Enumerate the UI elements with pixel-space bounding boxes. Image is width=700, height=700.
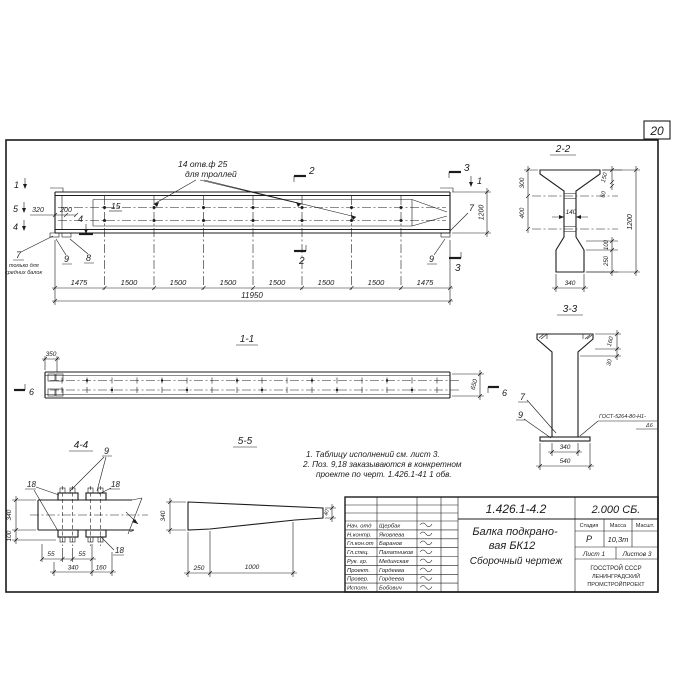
- section-mark-5: 5: [13, 202, 26, 214]
- svg-text:350: 350: [46, 351, 57, 358]
- row-name: Баранов: [379, 541, 402, 547]
- pos-label-9-left: 9: [56, 239, 72, 264]
- svg-text:1500: 1500: [318, 278, 336, 287]
- dim-160-30: 160 30: [580, 330, 621, 367]
- bolt-assemblies: [58, 486, 106, 546]
- view-1-1-title: 1-1: [240, 334, 254, 345]
- svg-text:7: 7: [520, 392, 526, 402]
- dim-bottom-v44: 55 55 340 160: [40, 544, 116, 576]
- svg-text:55: 55: [78, 551, 86, 558]
- svg-text:1475: 1475: [417, 278, 435, 287]
- org-line-3: ПРОМСТРОЙПРОЕКТ: [587, 580, 645, 588]
- section-mark-2-bottom: 2: [294, 245, 306, 267]
- pos-label-8: 8: [70, 239, 94, 263]
- dim-340-v55: 340: [160, 498, 186, 534]
- svg-text:100: 100: [6, 530, 13, 541]
- pos-label-7-right: 7: [450, 203, 475, 231]
- doc-type: Сборочный чертеж: [470, 555, 564, 567]
- pos-label-15: 15: [109, 201, 122, 211]
- section-mark-3-top: 3: [449, 163, 470, 178]
- view-4-4: 4-4 9 18 18: [6, 440, 148, 576]
- val-stage: Р: [586, 534, 592, 544]
- svg-text:только для: только для: [9, 263, 39, 269]
- row-role: Рук. гр.: [347, 559, 367, 565]
- svg-text:250: 250: [604, 255, 610, 267]
- holes-callout: 14 отв.ф 25 для троллей: [154, 159, 356, 220]
- main-elevation-view: 1 5 4 4 2 2 3 3: [5, 159, 491, 305]
- hole-marks-plan: [62, 378, 437, 394]
- org-line-2: ЛЕНИНГРАДСКИЙ: [592, 572, 640, 580]
- row-name: Щербак: [379, 524, 400, 530]
- note-line-3: проекте по черт. 1.426.1-41 1 обв.: [316, 470, 452, 479]
- section-mark-6-right: 6: [488, 387, 507, 398]
- svg-text:1000: 1000: [245, 564, 260, 571]
- doc-number: 1.426.1-4.2: [486, 502, 547, 516]
- svg-text:1500: 1500: [170, 278, 188, 287]
- dim-250-1000: 250 1000: [184, 522, 297, 577]
- section-3-3: 3-3 160 30 7 9 ГОСТ-5264-80-Н1- Δ6 340: [516, 304, 657, 470]
- svg-text:15: 15: [111, 201, 121, 211]
- svg-text:8: 8: [86, 253, 91, 263]
- row-role: Нач. отд: [347, 524, 372, 530]
- pos-label-9-right: 9: [427, 239, 445, 264]
- section-mark-1-right: 1: [469, 176, 482, 187]
- svg-text:320: 320: [32, 207, 44, 214]
- row-role: Исполн.: [347, 586, 368, 592]
- svg-text:2: 2: [308, 166, 315, 177]
- col-scale: Масшт.: [636, 523, 655, 529]
- svg-text:3: 3: [464, 163, 470, 174]
- pos-label-7-left: 7 только для средних балок: [5, 236, 53, 276]
- svg-text:7: 7: [16, 250, 22, 260]
- svg-text:4: 4: [78, 214, 83, 224]
- svg-text:1200: 1200: [627, 214, 634, 230]
- val-mass: 10,3т: [608, 535, 629, 544]
- dim-350: 350: [42, 351, 60, 372]
- dim-650: 650: [452, 370, 484, 400]
- page-number: 20: [649, 124, 664, 138]
- sheet-count: Листов 3: [621, 551, 651, 558]
- note-line-2: 2. Поз. 9,18 заказываются в конкретном: [302, 460, 462, 469]
- svg-text:5: 5: [13, 204, 19, 214]
- svg-text:7: 7: [469, 203, 475, 213]
- dim-chain: 1475 1500 1500 1500 1500 1500 1500 1475 …: [52, 240, 453, 305]
- svg-text:18: 18: [115, 546, 124, 555]
- product-title-1: Балка подкрано-: [472, 526, 558, 538]
- section-mark-4-inner: 4: [78, 214, 93, 234]
- view-1-1: 1-1 350 650 6 6: [14, 334, 507, 400]
- svg-text:650: 650: [470, 378, 480, 391]
- row-role: Н.контр.: [347, 532, 372, 538]
- dim-1200-section: 1200: [586, 166, 640, 276]
- dim-340-100-v44: 340 100: [6, 496, 56, 544]
- svg-text:1500: 1500: [121, 278, 139, 287]
- section-mark-2-top: 2: [294, 166, 315, 182]
- svg-text:Δ6: Δ6: [645, 423, 654, 429]
- title-block: 1.426.1-4.2 2.000 СБ. Балка подкрано- ва…: [345, 497, 658, 592]
- svg-text:ГОСТ-5264-80-Н1-: ГОСТ-5264-80-Н1-: [599, 414, 646, 420]
- pos-label-18-b: 18: [99, 480, 120, 494]
- dim-320-200: 320 200: [30, 207, 78, 217]
- pos-label-18-a: 18: [25, 480, 59, 531]
- view-4-4-title: 4-4: [74, 440, 89, 451]
- svg-text:3: 3: [455, 263, 461, 274]
- dim-150-50: 150 50: [600, 166, 622, 199]
- row-role: Провер.: [347, 577, 369, 583]
- svg-text:1475: 1475: [71, 278, 89, 287]
- svg-text:9: 9: [429, 254, 434, 264]
- dim-total: 11950: [241, 291, 263, 300]
- section-3-3-title: 3-3: [563, 304, 578, 315]
- svg-text:18: 18: [111, 480, 120, 489]
- row-role: Гл.спец.: [347, 550, 369, 556]
- dim-340-section22: 340: [552, 274, 588, 292]
- section-mark-1-left: 1: [14, 178, 27, 190]
- svg-text:9: 9: [64, 254, 69, 264]
- svg-text:160: 160: [607, 335, 616, 347]
- svg-text:6: 6: [29, 387, 34, 397]
- doc-code: 2.000 СБ.: [591, 504, 641, 516]
- svg-text:2: 2: [298, 256, 305, 267]
- svg-text:55: 55: [47, 551, 55, 558]
- svg-text:9: 9: [104, 446, 109, 456]
- svg-text:1500: 1500: [220, 278, 238, 287]
- row-name: Гордеева: [379, 568, 405, 574]
- svg-text:50: 50: [600, 190, 608, 199]
- section-2-2-title: 2-2: [555, 144, 571, 155]
- signature-marks: [420, 523, 432, 589]
- svg-text:340: 340: [560, 444, 571, 451]
- drawing-notes: 1. Таблицу исполнений см. лист 3. 2. Поз…: [302, 450, 462, 479]
- drawing-sheet: 20 1 5 4 4: [0, 0, 700, 700]
- svg-text:100: 100: [604, 239, 610, 250]
- svg-text:для троллей: для троллей: [185, 169, 237, 179]
- pos-7-9-section33: 7 9: [516, 392, 556, 438]
- section-2-2: 2-2 140 300 400 150 50 100 250: [519, 144, 640, 292]
- svg-text:160: 160: [96, 565, 107, 572]
- row-name: Бобович: [379, 586, 402, 592]
- row-role: Проект.: [347, 568, 370, 574]
- dim-40: 40: [323, 504, 336, 522]
- svg-text:1200: 1200: [479, 205, 486, 221]
- dim-340-540: 340 540: [536, 443, 594, 470]
- org-line-1: ГОССТРОЙ СССР: [590, 564, 641, 572]
- col-stage: Стадия: [580, 523, 599, 529]
- svg-text:9: 9: [518, 410, 523, 420]
- svg-text:18: 18: [27, 480, 36, 489]
- product-title-2: вая БК12: [489, 540, 535, 552]
- svg-text:340: 340: [160, 510, 167, 521]
- svg-text:30: 30: [606, 358, 614, 367]
- svg-text:340: 340: [6, 509, 13, 520]
- svg-text:200: 200: [59, 207, 72, 214]
- svg-text:1: 1: [14, 180, 19, 190]
- col-mass: Масса: [610, 523, 627, 529]
- row-role: Гл.кон.от: [347, 541, 374, 547]
- svg-text:140: 140: [566, 209, 577, 216]
- row-name: Мединская: [379, 559, 409, 565]
- view-5-5-title: 5-5: [238, 436, 253, 447]
- section-mark-6-left: 6: [14, 384, 34, 397]
- pos-label-9-v44: 9: [70, 446, 112, 491]
- svg-text:400: 400: [519, 207, 526, 218]
- sheet-number: Лист 1: [582, 551, 606, 558]
- svg-text:340: 340: [68, 565, 79, 572]
- dim-100-250: 100 250: [586, 237, 618, 276]
- row-name: Яковлева: [378, 532, 405, 538]
- dim-140: 140: [552, 209, 588, 219]
- svg-text:6: 6: [502, 388, 507, 398]
- row-name: Гордеева: [379, 577, 405, 583]
- section-mark-3-bottom: 3: [449, 252, 461, 274]
- row-name: Палатников: [379, 550, 413, 556]
- svg-text:1: 1: [477, 176, 482, 186]
- svg-text:340: 340: [565, 280, 576, 287]
- dim-300-400: 300 400: [519, 166, 538, 233]
- svg-text:40: 40: [323, 508, 331, 516]
- svg-text:250: 250: [193, 565, 205, 572]
- weld-callout: ГОСТ-5264-80-Н1- Δ6: [580, 414, 657, 436]
- svg-text:300: 300: [519, 177, 526, 188]
- svg-text:4: 4: [13, 222, 18, 232]
- svg-text:средних балок: средних балок: [5, 270, 42, 276]
- svg-text:540: 540: [560, 458, 571, 465]
- svg-text:14 отв.ф 25: 14 отв.ф 25: [178, 159, 228, 169]
- svg-text:1500: 1500: [269, 278, 287, 287]
- svg-text:1500: 1500: [368, 278, 386, 287]
- signature-rows: Нач. отдЩербак Н.контр.Яковлева Гл.кон.о…: [347, 523, 432, 592]
- section-mark-4-left: 4: [13, 220, 26, 232]
- svg-text:150: 150: [601, 171, 610, 183]
- note-line-1: 1. Таблицу исполнений см. лист 3.: [306, 450, 440, 459]
